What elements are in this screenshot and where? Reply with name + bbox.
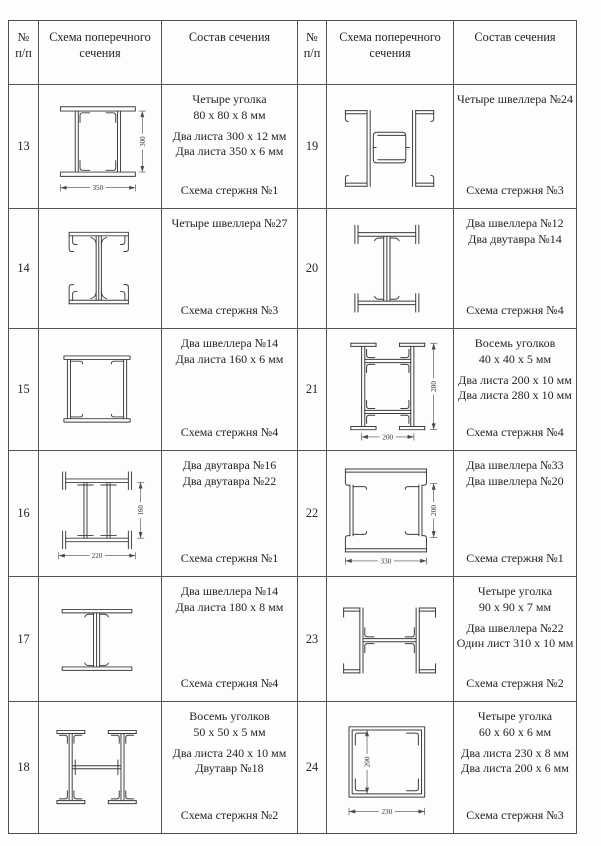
header-scheme-label: Схема поперечного сечения	[327, 30, 453, 62]
composition-line: Два двутавра №14	[456, 232, 574, 248]
rod-scheme-label: Схема стержня №4	[456, 303, 574, 319]
composition-line: Четыре уголка	[456, 709, 574, 725]
composition-line: Два швеллера №33	[456, 458, 574, 474]
row-number-cell: 14	[9, 209, 39, 329]
composition-line: 90 х 90 х 7 мм	[456, 600, 574, 616]
cross-section-drawing: 330200	[331, 460, 448, 566]
section-scheme-cell	[39, 702, 162, 833]
composition-group: Восемь уголков50 х 50 х 5 мм	[164, 709, 295, 741]
composition-text: Четыре уголка80 х 80 х 8 ммДва листа 300…	[164, 92, 295, 165]
composition-group: Два швеллера №22Один лист 310 х 10 мм	[456, 621, 574, 653]
section-scheme-cell	[39, 209, 162, 329]
dimension-label: 220	[92, 552, 103, 560]
header-num-line1: №	[306, 30, 318, 46]
composition-text: Восемь уголков50 х 50 х 5 ммДва листа 24…	[164, 709, 295, 782]
composition-group: Два швеллера №33Два швеллера №20	[456, 458, 574, 490]
cross-section-drawing	[331, 98, 448, 195]
composition-text: Два швеллера №14Два листа 160 х 6 мм	[164, 336, 295, 373]
composition-line: Четыре уголка	[164, 92, 295, 108]
cross-section-drawing	[43, 720, 156, 814]
section-composition-cell: Два швеллера №33Два швеллера №20Схема ст…	[454, 451, 576, 577]
row-number-cell: 21	[298, 329, 327, 451]
composition-line: Два листа 240 х 10 мм	[164, 746, 295, 762]
row-number-cell: 24	[298, 702, 327, 833]
composition-line: Два двутавра №16	[164, 458, 295, 474]
row-number: 20	[306, 261, 318, 276]
rod-scheme-label: Схема стержня №4	[164, 676, 295, 692]
row-number: 18	[17, 760, 29, 775]
composition-text: Два двутавра №16Два двутавра №22	[164, 458, 295, 495]
composition-group: Четыре уголка90 х 90 х 7 мм	[456, 584, 574, 616]
section-composition-cell: Четыре уголка90 х 90 х 7 ммДва швеллера …	[454, 577, 576, 702]
composition-line: Два швеллера №22	[456, 621, 574, 637]
composition-group: Четыре уголка60 х 60 х 6 мм	[456, 709, 574, 741]
composition-group: Два швеллера №12Два двутавра №14	[456, 216, 574, 248]
sections-table: № п/п Схема поперечного сечения Состав с…	[8, 20, 577, 834]
header-scheme-left: Схема поперечного сечения	[39, 21, 162, 85]
section-scheme-cell: 330200	[327, 451, 454, 577]
composition-line: 60 х 60 х 6 мм	[456, 725, 574, 741]
row-number-cell: 15	[9, 329, 39, 451]
rod-scheme-label: Схема стержня №4	[164, 425, 295, 441]
row-number: 24	[306, 760, 318, 775]
section-scheme-cell: 200230	[327, 702, 454, 833]
dimension-label: 300	[139, 136, 147, 147]
composition-text: Четыре уголка90 х 90 х 7 ммДва швеллера …	[456, 584, 574, 657]
section-composition-cell: Четыре уголка80 х 80 х 8 ммДва листа 300…	[162, 85, 298, 209]
header-composition-label: Состав сечения	[189, 30, 270, 46]
cross-section-drawing: 200230	[331, 716, 448, 819]
composition-line: 50 х 50 х 5 мм	[164, 725, 295, 741]
composition-group: Два швеллера №14Два листа 160 х 6 мм	[164, 336, 295, 368]
composition-line: 40 х 40 х 5 мм	[456, 352, 574, 368]
row-number-cell: 19	[298, 85, 327, 209]
composition-line: Двутавр №18	[164, 761, 295, 777]
composition-group: Четыре швеллера №27	[164, 216, 295, 232]
composition-line: Два швеллера №20	[456, 474, 574, 490]
header-scheme-right: Схема поперечного сечения	[327, 21, 454, 85]
header-num-left: № п/п	[9, 21, 39, 85]
header-num-line2: п/п	[304, 46, 321, 62]
composition-group: Два швеллера №14Два листа 180 х 8 мм	[164, 584, 295, 616]
header-num-right: № п/п	[298, 21, 327, 85]
composition-group: Два листа 230 х 8 ммДва листа 200 х 6 мм	[456, 746, 574, 778]
section-scheme-cell	[39, 329, 162, 451]
cross-section-drawing	[43, 592, 156, 686]
composition-group: Два листа 200 х 10 ммДва листа 280 х 10 …	[456, 373, 574, 405]
dimension-label: 200	[364, 756, 372, 767]
rod-scheme-label: Схема стержня №2	[164, 808, 295, 824]
section-composition-cell: Два двутавра №16Два двутавра №22Схема ст…	[162, 451, 298, 577]
rod-scheme-label: Схема стержня №1	[164, 551, 295, 567]
section-composition-cell: Четыре уголка60 х 60 х 6 ммДва листа 230…	[454, 702, 576, 833]
composition-group: Два двутавра №16Два двутавра №22	[164, 458, 295, 490]
row-number-cell: 20	[298, 209, 327, 329]
dimension-label: 200	[431, 505, 439, 516]
dimension-label: 330	[381, 558, 392, 566]
cross-section-drawing: 220160	[43, 465, 156, 563]
composition-text: Два швеллера №33Два швеллера №20	[456, 458, 574, 495]
section-scheme-cell: 220160	[39, 451, 162, 577]
dimension-label: 200	[383, 434, 394, 442]
header-scheme-label: Схема поперечного сечения	[39, 30, 161, 62]
rod-scheme-label: Схема стержня №2	[456, 676, 574, 692]
section-composition-cell: Два швеллера №14Два листа 180 х 8 ммСхем…	[162, 577, 298, 702]
section-composition-cell: Восемь уголков50 х 50 х 5 ммДва листа 24…	[162, 702, 298, 833]
composition-line: Четыре швеллера №24	[456, 92, 574, 108]
composition-line: Четыре уголка	[456, 584, 574, 600]
row-number-cell: 23	[298, 577, 327, 702]
composition-group: Восемь уголков40 х 40 х 5 мм	[456, 336, 574, 368]
cross-section-drawing	[43, 221, 156, 315]
section-composition-cell: Четыре швеллера №27Схема стержня №3	[162, 209, 298, 329]
row-number: 22	[306, 506, 318, 521]
composition-text: Два швеллера №14Два листа 180 х 8 мм	[164, 584, 295, 621]
rod-scheme-label: Схема стержня №4	[456, 425, 574, 441]
row-number: 14	[17, 261, 29, 276]
composition-line: Два листа 200 х 6 мм	[456, 761, 574, 777]
composition-line: Два швеллера №12	[456, 216, 574, 232]
composition-line: Два листа 200 х 10 мм	[456, 373, 574, 389]
dimension-label: 230	[382, 808, 393, 816]
composition-group: Два листа 240 х 10 ммДвутавр №18	[164, 746, 295, 778]
composition-group: Четыре уголка80 х 80 х 8 мм	[164, 92, 295, 124]
section-composition-cell: Восемь уголков40 х 40 х 5 ммДва листа 20…	[454, 329, 576, 451]
header-composition-right: Состав сечения	[454, 21, 576, 85]
dimension-label: 160	[137, 504, 145, 515]
composition-line: Два листа 280 х 10 мм	[456, 388, 574, 404]
composition-line: Два листа 180 х 8 мм	[164, 600, 295, 616]
composition-line: Два листа 230 х 8 мм	[456, 746, 574, 762]
rod-scheme-label: Схема стержня №3	[164, 303, 295, 319]
row-number-cell: 17	[9, 577, 39, 702]
composition-line: Два швеллера №14	[164, 584, 295, 600]
composition-line: Два листа 160 х 6 мм	[164, 352, 295, 368]
section-composition-cell: Четыре швеллера №24Схема стержня №3	[454, 85, 576, 209]
rod-scheme-label: Схема стержня №3	[456, 808, 574, 824]
scanned-page: № п/п Схема поперечного сечения Состав с…	[0, 0, 601, 846]
section-scheme-cell	[327, 209, 454, 329]
composition-text: Четыре швеллера №24	[456, 92, 574, 113]
composition-text: Четыре уголка60 х 60 х 6 ммДва листа 230…	[456, 709, 574, 782]
dimension-label: 350	[93, 184, 104, 192]
header-composition-left: Состав сечения	[162, 21, 298, 85]
cross-section-drawing: 200280	[331, 336, 448, 442]
row-number: 16	[17, 506, 29, 521]
composition-line: Два швеллера №14	[164, 336, 295, 352]
cross-section-drawing	[331, 220, 448, 317]
row-number-cell: 22	[298, 451, 327, 577]
section-scheme-cell	[327, 85, 454, 209]
header-num-line1: №	[18, 30, 30, 46]
section-scheme-cell: 350300	[39, 85, 162, 209]
cross-section-drawing	[43, 342, 156, 436]
composition-line: Восемь уголков	[164, 709, 295, 725]
composition-line: Два двутавра №22	[164, 474, 295, 490]
rod-scheme-label: Схема стержня №3	[456, 183, 574, 199]
section-scheme-cell	[327, 577, 454, 702]
header-composition-label: Состав сечения	[474, 30, 555, 46]
composition-line: Четыре швеллера №27	[164, 216, 295, 232]
rod-scheme-label: Схема стержня №1	[456, 551, 574, 567]
row-number-cell: 18	[9, 702, 39, 833]
composition-line: Два листа 300 х 12 мм	[164, 129, 295, 145]
rod-scheme-label: Схема стержня №1	[164, 183, 295, 199]
row-number: 17	[17, 632, 29, 647]
section-scheme-cell	[39, 577, 162, 702]
dimension-label: 280	[431, 381, 439, 392]
row-number-cell: 13	[9, 85, 39, 209]
section-composition-cell: Два швеллера №12Два двутавра №14Схема ст…	[454, 209, 576, 329]
composition-line: 80 х 80 х 8 мм	[164, 108, 295, 124]
row-number: 13	[17, 139, 29, 154]
header-num-line2: п/п	[15, 46, 32, 62]
composition-group: Два листа 300 х 12 ммДва листа 350 х 6 м…	[164, 129, 295, 161]
composition-group: Четыре швеллера №24	[456, 92, 574, 108]
composition-text: Четыре швеллера №27	[164, 216, 295, 237]
row-number: 21	[306, 382, 318, 397]
row-number-cell: 16	[9, 451, 39, 577]
composition-text: Два швеллера №12Два двутавра №14	[456, 216, 574, 253]
composition-line: Один лист 310 х 10 мм	[456, 636, 574, 652]
section-composition-cell: Два швеллера №14Два листа 160 х 6 ммСхем…	[162, 329, 298, 451]
composition-line: Два листа 350 х 6 мм	[164, 144, 295, 160]
row-number: 23	[306, 632, 318, 647]
cross-section-drawing: 350300	[43, 98, 156, 196]
composition-text: Восемь уголков40 х 40 х 5 ммДва листа 20…	[456, 336, 574, 409]
row-number: 15	[17, 382, 29, 397]
cross-section-drawing	[331, 590, 448, 687]
row-number: 19	[306, 139, 318, 154]
section-scheme-cell: 200280	[327, 329, 454, 451]
composition-line: Восемь уголков	[456, 336, 574, 352]
